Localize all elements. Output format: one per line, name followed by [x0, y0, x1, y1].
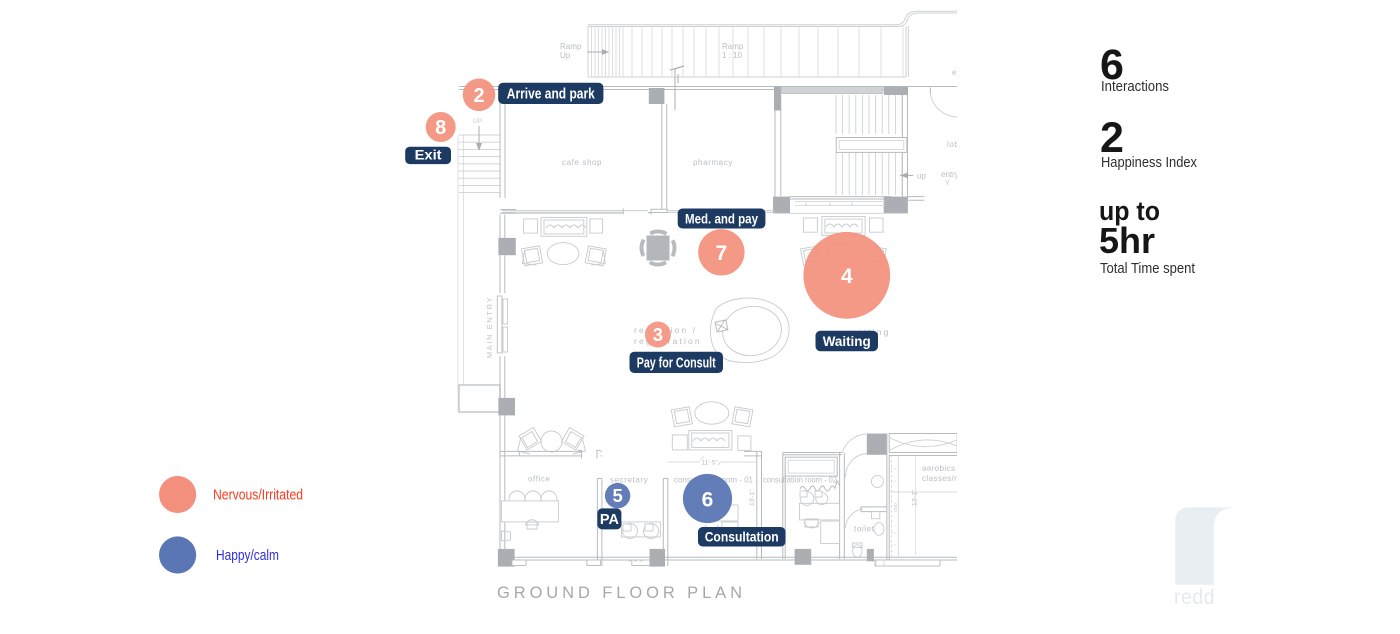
svg-text:entry: entry: [941, 170, 959, 179]
svg-text:GROUND FLOOR PLAN: GROUND FLOOR PLAN: [497, 584, 742, 602]
svg-text:up: up: [917, 172, 926, 181]
svg-text:Total Time spent: Total Time spent: [1100, 260, 1196, 277]
svg-text:8: 8: [435, 117, 446, 139]
svg-text:3: 3: [653, 324, 663, 345]
svg-text:Happiness Index: Happiness Index: [1101, 154, 1197, 171]
svg-text:consultation room - 02: consultation room - 02: [763, 476, 838, 485]
svg-text:toilet: toilet: [854, 525, 875, 534]
svg-text:classes/mu: classes/mu: [922, 474, 966, 483]
svg-text:5hr: 5hr: [1099, 220, 1155, 261]
svg-text:voo: voo: [893, 503, 899, 512]
svg-text:Nervous/Irritated: Nervous/Irritated: [213, 487, 303, 504]
svg-text:Pay for Consult: Pay for Consult: [637, 355, 716, 371]
svg-text:Interactions: Interactions: [1101, 78, 1169, 95]
svg-text:PA: PA: [600, 512, 620, 528]
svg-text:4: 4: [841, 265, 853, 288]
svg-text:Ramp: Ramp: [560, 42, 582, 51]
svg-text:Up: Up: [560, 51, 571, 60]
svg-text:MAIN ENTRY: MAIN ENTRY: [485, 296, 494, 358]
svg-text:2: 2: [473, 85, 484, 107]
svg-text:Waiting: Waiting: [823, 333, 871, 349]
svg-text:5: 5: [612, 485, 622, 506]
svg-text:Consultation: Consultation: [705, 528, 779, 544]
svg-text:Ramp: Ramp: [722, 42, 744, 51]
svg-text:lobby: lobby: [947, 140, 969, 149]
svg-text:cafe shop: cafe shop: [562, 158, 602, 167]
svg-text:13'-1": 13'-1": [912, 489, 919, 506]
svg-text:11'-5": 11'-5": [702, 460, 719, 467]
svg-text:Y: Y: [945, 180, 950, 187]
svg-text:Exit: Exit: [415, 147, 442, 163]
svg-text:entrance: entrance: [952, 68, 984, 77]
svg-text:13'-1": 13'-1": [749, 489, 756, 506]
svg-text:redd: redd: [1174, 586, 1215, 609]
svg-text:1 : 10: 1 : 10: [722, 51, 743, 60]
svg-text:Happy/calm: Happy/calm: [216, 547, 279, 564]
svg-text:Arrive and park: Arrive and park: [507, 86, 596, 102]
svg-text:UP: UP: [473, 118, 482, 125]
svg-text:pharmacy: pharmacy: [693, 158, 733, 167]
svg-text:aerobics /: aerobics /: [922, 464, 961, 473]
svg-text:6: 6: [702, 489, 714, 512]
svg-text:Med. and pay: Med. and pay: [685, 211, 758, 226]
svg-text:office: office: [528, 475, 551, 484]
svg-text:7: 7: [716, 242, 728, 265]
